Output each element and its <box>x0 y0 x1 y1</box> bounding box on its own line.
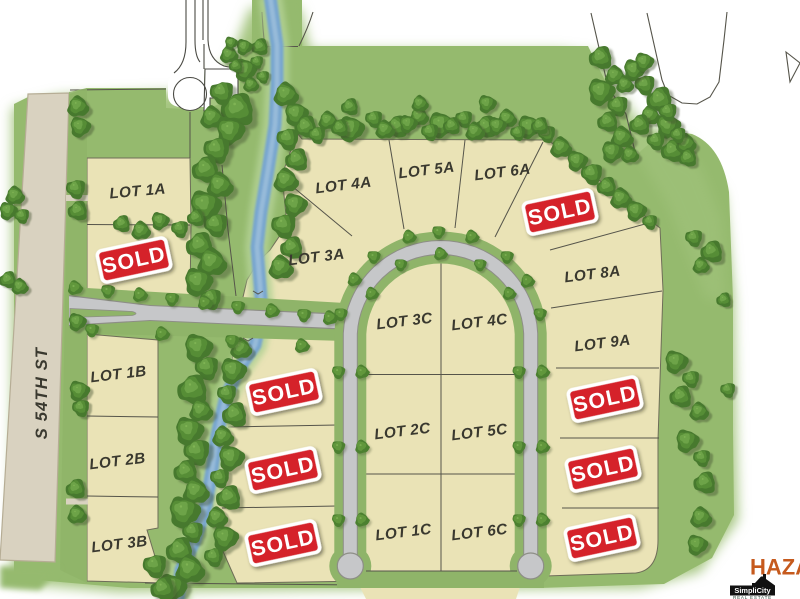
svg-text:HAZAR: HAZAR <box>750 555 800 580</box>
svg-text:SimpliCity: SimpliCity <box>734 586 771 595</box>
svg-text:S 54TH ST: S 54TH ST <box>33 346 51 439</box>
svg-text:REAL ESTATE: REAL ESTATE <box>733 595 772 599</box>
